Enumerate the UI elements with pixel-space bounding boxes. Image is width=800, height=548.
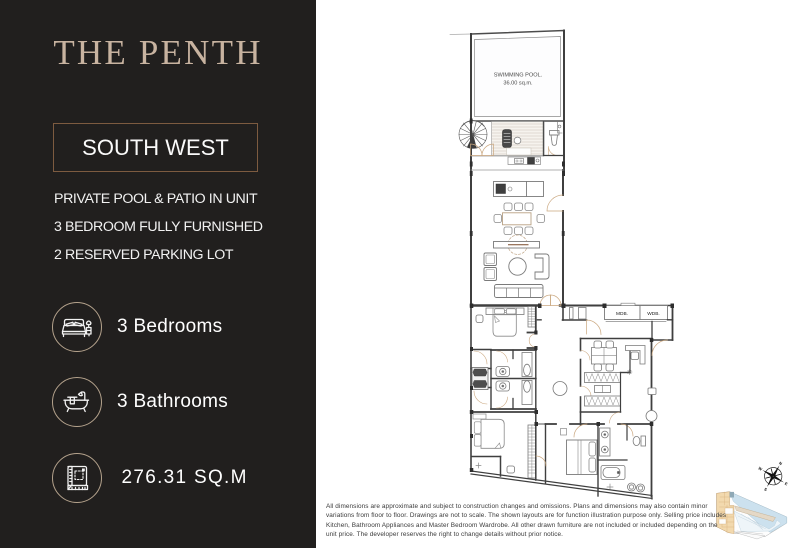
svg-text:N: N [778,460,783,466]
svg-text:E: E [784,481,789,487]
svg-text:MDB.: MDB. [616,311,628,317]
svg-text:S: S [763,486,768,492]
svg-text:36.00 sq.m.: 36.00 sq.m. [503,81,533,87]
svg-text:W: W [757,466,763,472]
svg-text:WDB.: WDB. [647,311,660,317]
svg-text:SWIMMING POOL.: SWIMMING POOL. [494,73,543,79]
